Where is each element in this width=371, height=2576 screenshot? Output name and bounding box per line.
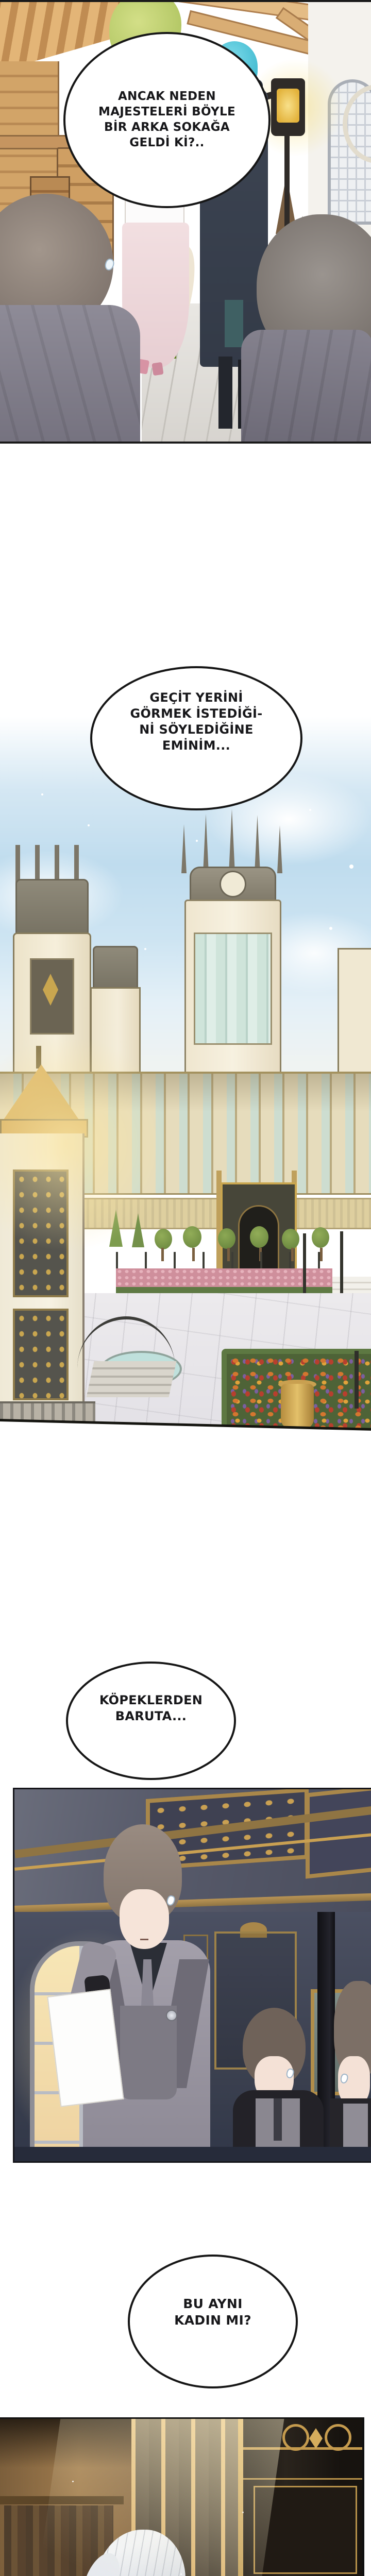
attendant-a-brooch <box>166 2010 177 2021</box>
light-beam <box>20 2417 285 2576</box>
speech-bubble-4-text: BU AYNI KADIN MI? <box>174 2296 251 2329</box>
right-tower-sliver <box>338 948 371 1086</box>
garden-urn <box>281 1384 314 1429</box>
speech-bubble-1-text: ANCAK NEDEN MAJESTELERİ BÖYLE BİR ARKA S… <box>98 89 235 151</box>
lamp-post-1 <box>303 1233 306 1295</box>
webtoon-page: ANCAK NEDEN MAJESTELERİ BÖYLE BİR ARKA S… <box>0 0 371 2576</box>
speech-bubble-2: GEÇİT YERİNİ GÖRMEK İSTEDİĞİ- Nİ SÖYLEDİ… <box>90 666 302 810</box>
document-paper <box>47 1989 124 2107</box>
man-coat-teal-inner <box>225 300 243 347</box>
speech-bubble-3-text: KÖPEKLERDEN BARUTA... <box>99 1692 203 1724</box>
speech-bubble-4: BU AYNI KADIN MI? <box>128 2255 298 2388</box>
attendant-a-mouth <box>140 1939 148 1940</box>
dust-sparkles <box>72 2481 74 2482</box>
panel-palace-exterior <box>0 716 371 1432</box>
lantern-light <box>277 89 299 123</box>
woman-heel-2 <box>151 362 163 376</box>
right-lamp <box>355 1351 359 1409</box>
panel4-right-border <box>362 2417 364 2576</box>
bridge-stairs <box>87 1361 177 1397</box>
attendant-b-tie <box>274 2098 282 2141</box>
speech-bubble-3: KÖPEKLERDEN BARUTA... <box>66 1662 236 1780</box>
speech-bubble-2-text: GEÇİT YERİNİ GÖRMEK İSTEDİĞİ- Nİ SÖYLEDİ… <box>130 690 262 754</box>
onlooker-right-cloak <box>241 330 371 443</box>
floor-strip <box>14 2147 371 2161</box>
panel-man-at-desk <box>0 2417 364 2576</box>
clock-face <box>220 871 246 897</box>
kiosk-balcony <box>0 1401 95 1432</box>
cabinet-scroll-icon <box>282 2424 309 2451</box>
panel-attendants-hall <box>13 1788 371 2163</box>
onlooker-left-cloak <box>0 305 140 444</box>
sun-flare <box>0 994 216 1293</box>
kiosk-panel-2 <box>13 1309 69 1400</box>
speech-bubble-1: ANCAK NEDEN MAJESTELERİ BÖYLE BİR ARKA S… <box>63 32 271 208</box>
lamp-post-2 <box>340 1231 343 1295</box>
second-tower-crown <box>93 946 138 993</box>
ceiling-coffer-2 <box>306 1788 371 1879</box>
sparkles <box>41 793 43 795</box>
left-tower-crown <box>15 879 89 939</box>
cabinet-scroll-icon-2 <box>325 2424 351 2451</box>
man-leg-1 <box>218 357 232 429</box>
balustrade-right <box>297 1198 371 1229</box>
central-spires <box>181 809 284 876</box>
